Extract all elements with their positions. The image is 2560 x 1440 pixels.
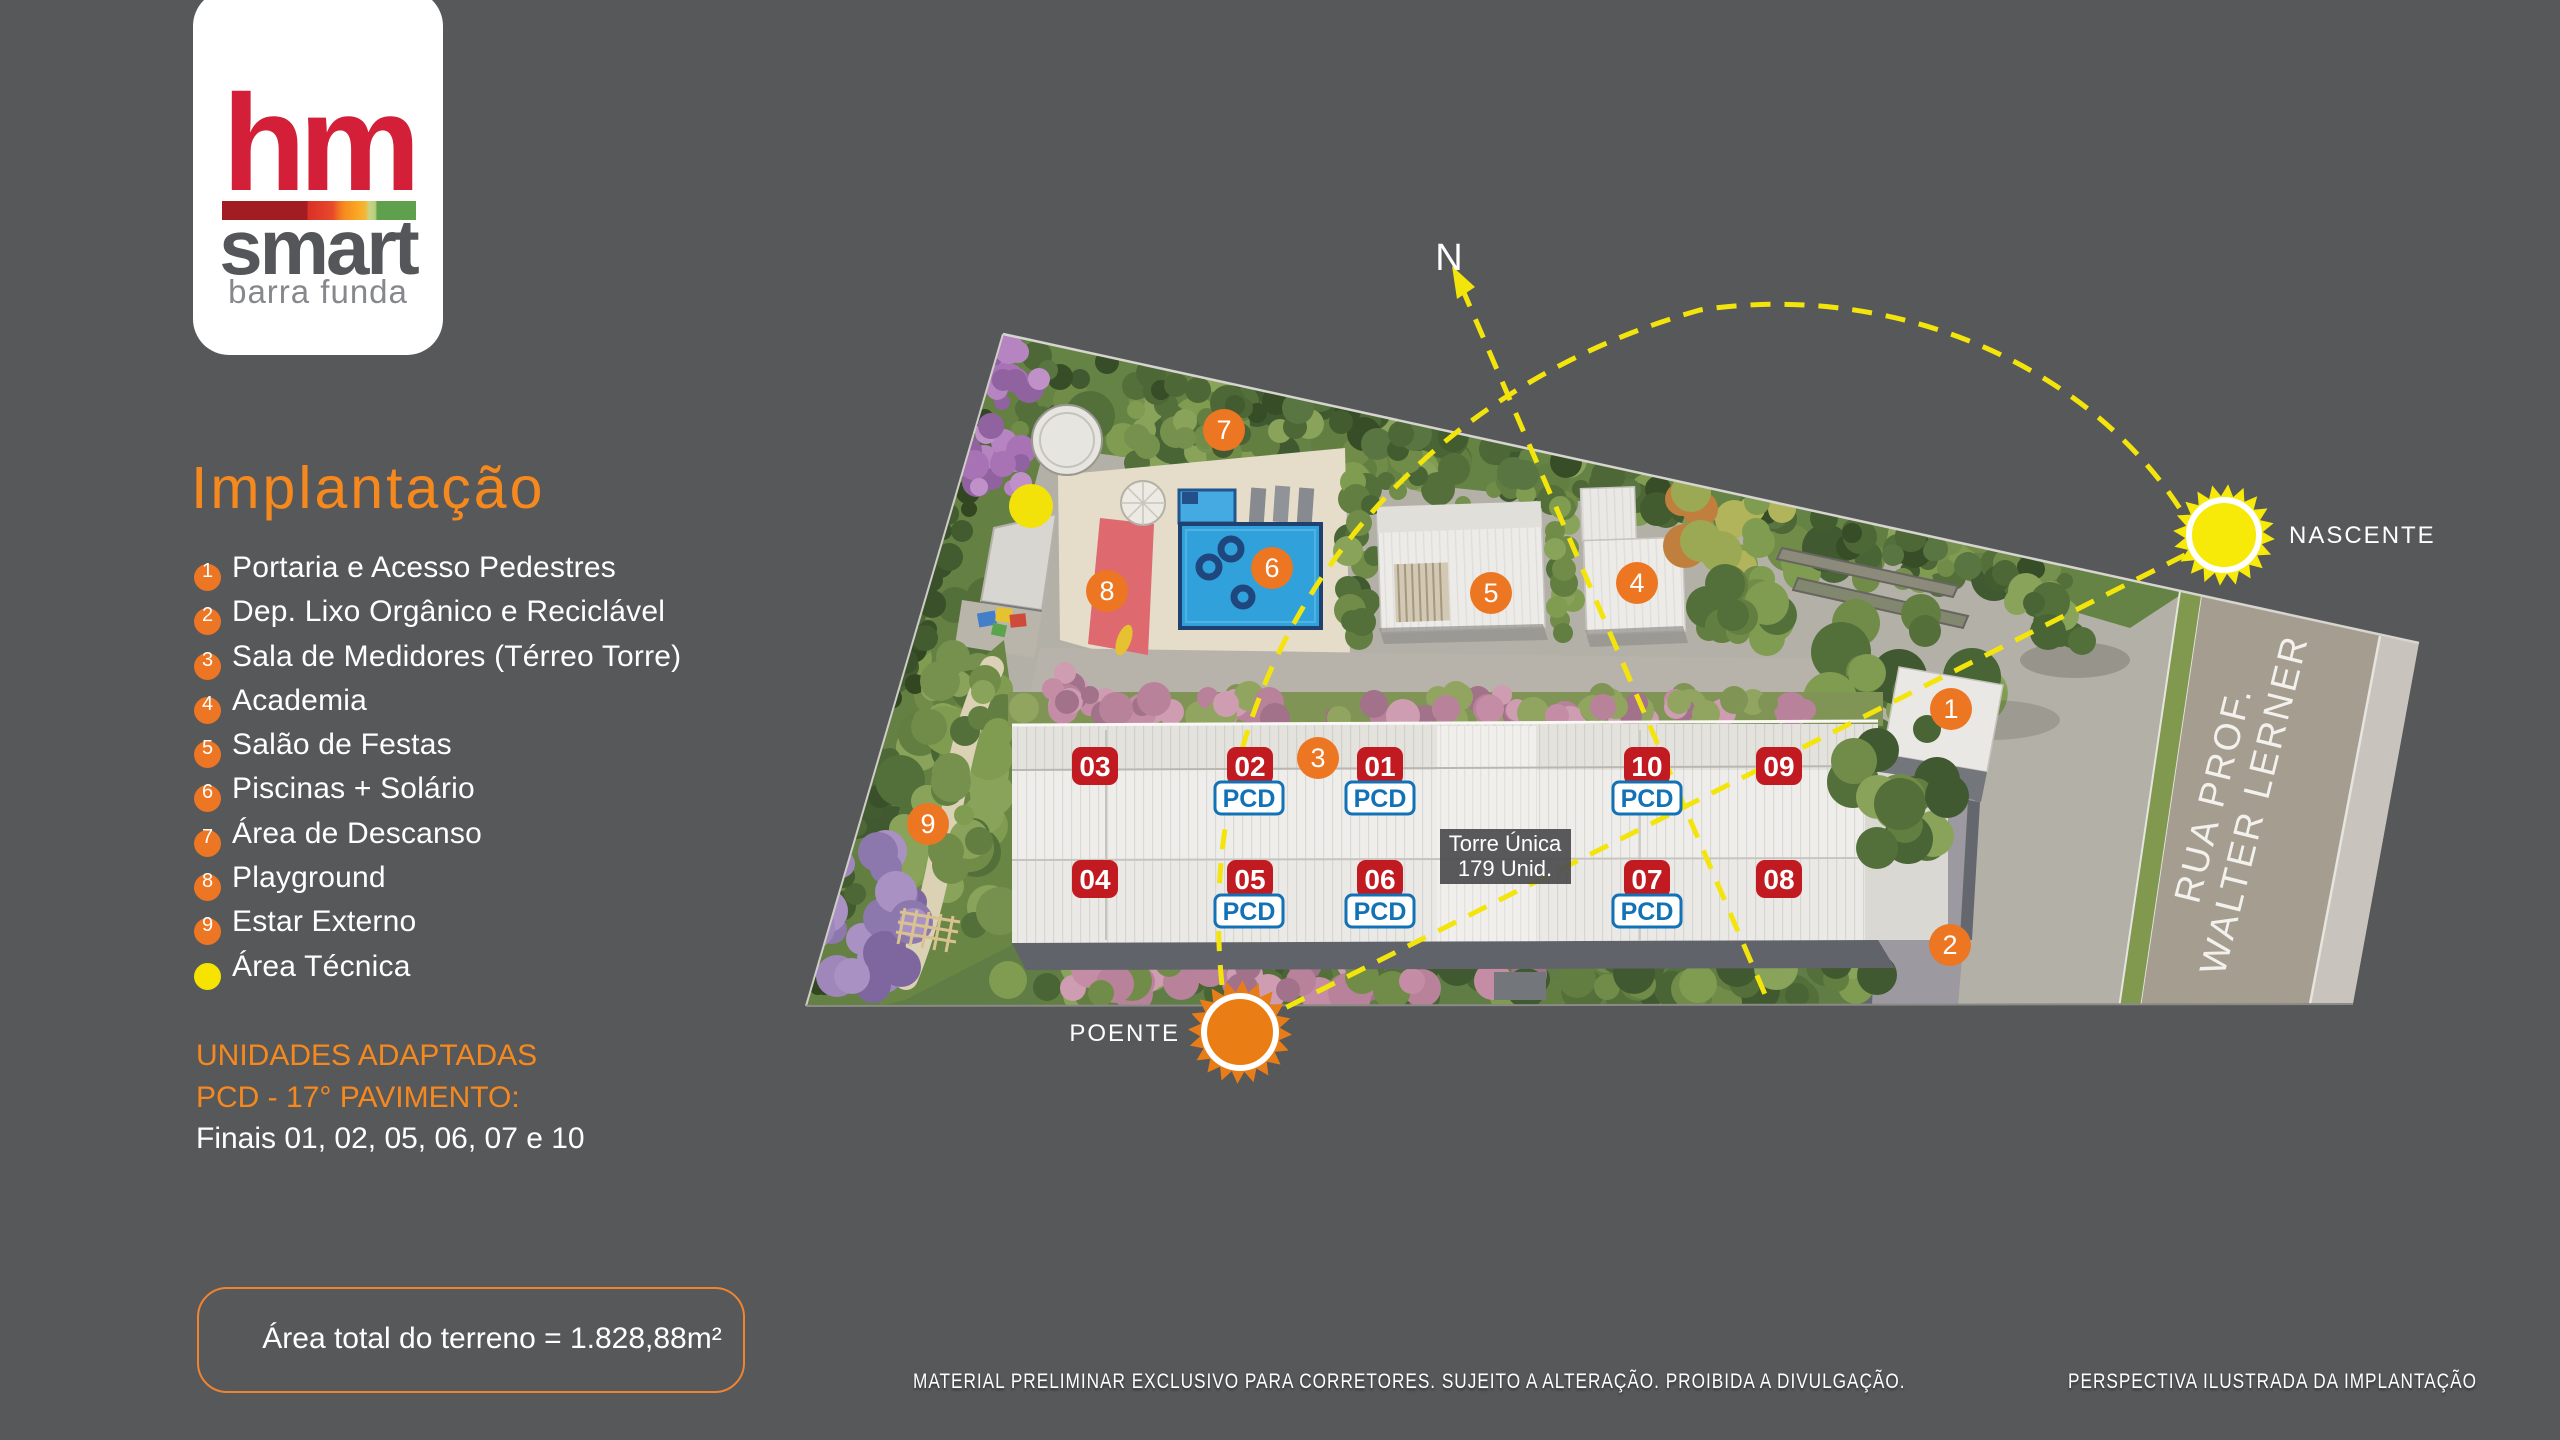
- svg-text:02: 02: [1234, 751, 1265, 782]
- svg-text:PCD: PCD: [1354, 785, 1407, 813]
- svg-text:5: 5: [1483, 578, 1498, 608]
- svg-text:NASCENTE: NASCENTE: [2289, 522, 2436, 549]
- svg-text:2: 2: [1942, 930, 1957, 960]
- svg-text:03: 03: [1079, 751, 1110, 782]
- svg-text:PCD: PCD: [1223, 898, 1276, 926]
- svg-text:POENTE: POENTE: [1069, 1020, 1180, 1047]
- svg-text:179 Unid.: 179 Unid.: [1458, 856, 1552, 881]
- svg-text:Torre Única: Torre Única: [1449, 831, 1562, 856]
- svg-text:07: 07: [1631, 864, 1662, 895]
- svg-text:3: 3: [1310, 743, 1325, 773]
- svg-text:8: 8: [1099, 576, 1114, 606]
- svg-text:04: 04: [1079, 864, 1111, 895]
- svg-text:4: 4: [1629, 568, 1644, 598]
- svg-text:PCD: PCD: [1621, 785, 1674, 813]
- svg-text:1: 1: [1943, 694, 1958, 724]
- svg-text:08: 08: [1763, 864, 1794, 895]
- svg-text:01: 01: [1364, 751, 1395, 782]
- svg-text:05: 05: [1234, 864, 1265, 895]
- svg-text:6: 6: [1264, 553, 1279, 583]
- svg-text:PCD: PCD: [1354, 898, 1407, 926]
- svg-text:06: 06: [1364, 864, 1395, 895]
- svg-text:7: 7: [1216, 415, 1231, 445]
- svg-text:09: 09: [1763, 751, 1794, 782]
- svg-text:PCD: PCD: [1621, 898, 1674, 926]
- svg-text:PCD: PCD: [1223, 785, 1276, 813]
- svg-text:10: 10: [1631, 751, 1662, 782]
- svg-text:9: 9: [920, 809, 935, 839]
- svg-text:N: N: [1435, 237, 1462, 279]
